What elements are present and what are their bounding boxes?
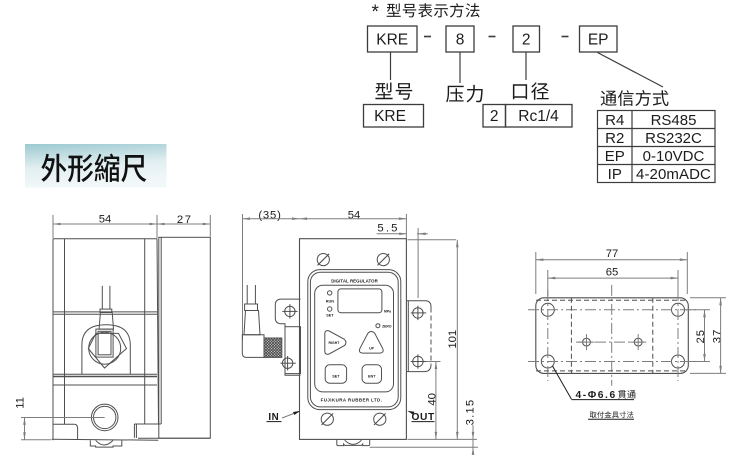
svg-text:77: 77 — [606, 248, 619, 260]
svg-text:SET: SET — [326, 314, 334, 318]
svg-text:RS232C: RS232C — [645, 130, 702, 147]
svg-text:(35): (35) — [258, 210, 281, 222]
svg-text:11: 11 — [14, 397, 26, 409]
svg-text:8: 8 — [456, 31, 465, 48]
svg-text:UP: UP — [369, 347, 375, 351]
svg-text:5.5: 5.5 — [377, 223, 399, 235]
svg-text:37: 37 — [711, 329, 723, 344]
svg-text:KRE: KRE — [376, 31, 408, 48]
svg-text:SET: SET — [332, 374, 340, 378]
svg-text:25: 25 — [695, 329, 707, 344]
svg-text:*: * — [372, 2, 380, 23]
svg-text:RS485: RS485 — [651, 112, 697, 129]
svg-text:54: 54 — [348, 210, 361, 222]
svg-text:MPa: MPa — [384, 310, 391, 314]
svg-text:RIGHT: RIGHT — [329, 341, 341, 345]
svg-text:3.15: 3.15 — [464, 399, 476, 426]
svg-text:R2: R2 — [605, 130, 624, 147]
svg-text:ZERO: ZERO — [382, 324, 392, 328]
svg-text:40: 40 — [427, 393, 439, 406]
svg-text:4-20mADC: 4-20mADC — [636, 166, 711, 183]
svg-text:DIGITAL REGULATOR: DIGITAL REGULATOR — [331, 278, 378, 283]
svg-text:2: 2 — [490, 108, 499, 125]
svg-text:EP: EP — [605, 148, 625, 165]
svg-text:R4: R4 — [605, 112, 624, 129]
svg-text:KRE: KRE — [374, 108, 406, 125]
svg-text:Rc1/4: Rc1/4 — [518, 108, 559, 125]
svg-text:EP: EP — [588, 31, 609, 48]
svg-text:FUJIKURA RUBBER LTD.: FUJIKURA RUBBER LTD. — [321, 397, 383, 402]
svg-text:IP: IP — [608, 166, 622, 183]
svg-text:2: 2 — [522, 31, 531, 48]
svg-text:0-10VDC: 0-10VDC — [643, 148, 705, 165]
svg-text:65: 65 — [606, 266, 619, 278]
svg-text:RUN: RUN — [326, 300, 334, 304]
svg-text:ENT: ENT — [368, 374, 376, 378]
